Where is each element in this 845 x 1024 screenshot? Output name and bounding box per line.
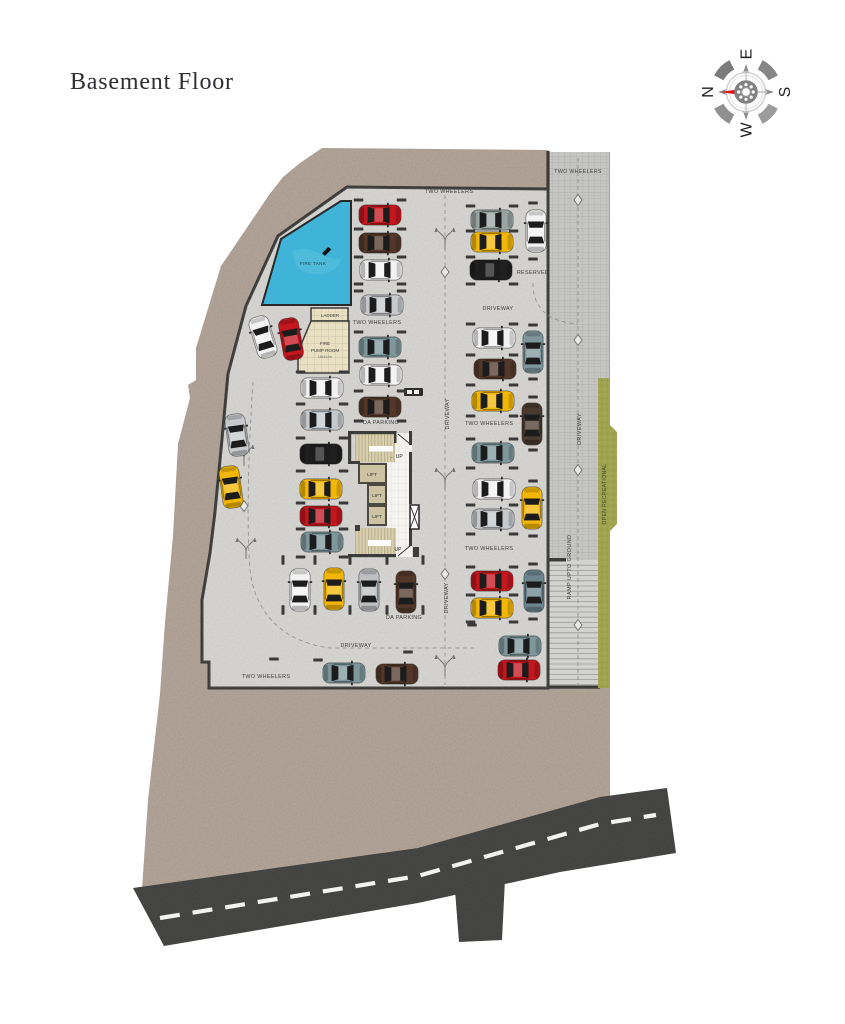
svg-text:FIRE: FIRE: [320, 341, 330, 346]
svg-text:DA PARKING: DA PARKING: [363, 420, 399, 426]
svg-text:OPEN RECREATIONAL: OPEN RECREATIONAL: [602, 464, 608, 525]
svg-text:E: E: [739, 49, 756, 60]
svg-text:W: W: [739, 122, 756, 138]
svg-text:DRIVEWAY: DRIVEWAY: [444, 582, 450, 613]
svg-text:RAMP UPTO GROUND: RAMP UPTO GROUND: [567, 535, 573, 600]
svg-text:TWO WHEELERS: TWO WHEELERS: [242, 674, 291, 680]
svg-text:DRIVEWAY: DRIVEWAY: [445, 398, 451, 429]
svg-text:PUMP ROOM: PUMP ROOM: [311, 348, 339, 353]
svg-text:TWO WHEELERS: TWO WHEELERS: [425, 189, 474, 195]
svg-text:LIFT: LIFT: [367, 472, 377, 478]
svg-text:UP: UP: [395, 547, 403, 553]
svg-text:← UP: ← UP: [389, 454, 403, 460]
svg-text:DA PARKING: DA PARKING: [386, 615, 422, 621]
svg-text:16x4x2m: 16x4x2m: [318, 355, 332, 359]
svg-text:DRIVEWAY: DRIVEWAY: [577, 413, 583, 445]
svg-text:DRIVEWAY: DRIVEWAY: [483, 306, 514, 312]
svg-text:TWO WHEELERS: TWO WHEELERS: [554, 169, 602, 175]
svg-text:LIFT: LIFT: [372, 514, 382, 520]
svg-text:S: S: [777, 87, 794, 98]
svg-text:RESERVED: RESERVED: [517, 270, 549, 276]
svg-text:N: N: [700, 86, 717, 98]
svg-text:TWO WHEELERS: TWO WHEELERS: [465, 546, 514, 552]
svg-text:TWO WHEELERS: TWO WHEELERS: [353, 320, 402, 326]
svg-text:DRIVEWAY: DRIVEWAY: [341, 643, 372, 649]
svg-text:LIFT: LIFT: [372, 493, 382, 499]
svg-text:LADDER: LADDER: [321, 313, 340, 318]
svg-text:TWO WHEELERS: TWO WHEELERS: [465, 421, 514, 427]
